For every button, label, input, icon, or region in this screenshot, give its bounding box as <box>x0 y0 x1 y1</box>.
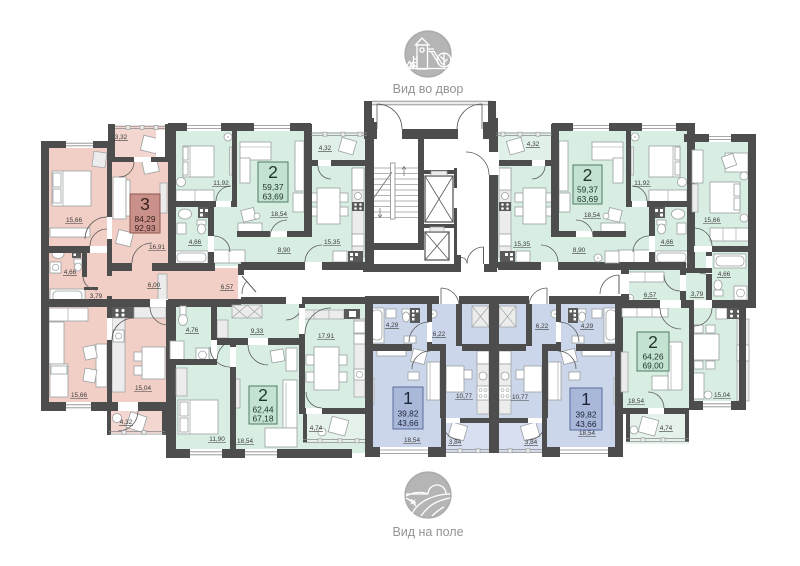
svg-text:43,66: 43,66 <box>576 419 597 429</box>
svg-text:1: 1 <box>403 388 413 408</box>
svg-text:3,79: 3,79 <box>90 293 103 300</box>
svg-text:3,32: 3,32 <box>115 134 128 141</box>
svg-text:2: 2 <box>583 165 593 185</box>
svg-text:4,29: 4,29 <box>386 322 399 329</box>
svg-text:6,00: 6,00 <box>148 282 161 289</box>
svg-text:4,66: 4,66 <box>64 269 77 276</box>
svg-text:39,82: 39,82 <box>398 409 419 419</box>
svg-text:92,93: 92,93 <box>135 223 156 233</box>
svg-text:11,92: 11,92 <box>213 180 229 187</box>
svg-text:63,69: 63,69 <box>577 194 598 204</box>
svg-text:43,66: 43,66 <box>398 418 419 428</box>
svg-text:4,74: 4,74 <box>310 425 323 432</box>
svg-text:17,91: 17,91 <box>318 333 334 340</box>
svg-text:69,00: 69,00 <box>643 361 664 371</box>
svg-text:3,84: 3,84 <box>525 439 538 446</box>
svg-text:3,84: 3,84 <box>449 439 462 446</box>
svg-text:15,04: 15,04 <box>714 392 730 399</box>
svg-text:8,90: 8,90 <box>573 247 586 254</box>
svg-text:4,29: 4,29 <box>581 323 594 330</box>
svg-text:6,22: 6,22 <box>536 323 549 330</box>
svg-text:4,76: 4,76 <box>186 327 199 334</box>
svg-text:4,32: 4,32 <box>120 419 133 426</box>
svg-text:15,66: 15,66 <box>66 217 82 224</box>
svg-text:4,32: 4,32 <box>527 141 540 148</box>
svg-text:8,90: 8,90 <box>278 247 291 254</box>
svg-text:2: 2 <box>258 385 268 405</box>
svg-text:18,54: 18,54 <box>404 437 420 444</box>
svg-text:39,82: 39,82 <box>576 410 597 420</box>
svg-text:4,66: 4,66 <box>189 239 202 246</box>
svg-text:2: 2 <box>268 162 278 182</box>
svg-text:6,57: 6,57 <box>644 292 657 299</box>
svg-text:3,79: 3,79 <box>691 291 704 298</box>
svg-text:9,33: 9,33 <box>251 328 264 335</box>
svg-text:1: 1 <box>581 389 591 409</box>
svg-text:4,74: 4,74 <box>660 425 673 432</box>
svg-text:11,92: 11,92 <box>634 180 650 187</box>
svg-text:Вид на поле: Вид на поле <box>392 525 463 539</box>
svg-text:59,37: 59,37 <box>577 185 598 195</box>
svg-text:15,35: 15,35 <box>324 239 340 246</box>
svg-text:6,57: 6,57 <box>221 284 234 291</box>
svg-text:6,22: 6,22 <box>433 331 446 338</box>
svg-text:2: 2 <box>648 332 658 352</box>
svg-text:59,37: 59,37 <box>263 182 284 192</box>
svg-text:11,90: 11,90 <box>209 436 225 443</box>
svg-text:18,54: 18,54 <box>628 398 644 405</box>
svg-text:4,66: 4,66 <box>718 271 731 278</box>
svg-text:67,18: 67,18 <box>253 414 274 424</box>
svg-text:18,54: 18,54 <box>579 430 595 437</box>
svg-text:4,66: 4,66 <box>661 239 674 246</box>
svg-text:18,54: 18,54 <box>237 438 253 445</box>
svg-text:15,66: 15,66 <box>704 217 720 224</box>
svg-text:18,54: 18,54 <box>271 211 287 218</box>
svg-text:15,66: 15,66 <box>71 392 87 399</box>
svg-text:16,91: 16,91 <box>149 244 165 251</box>
svg-text:18,54: 18,54 <box>584 212 600 219</box>
svg-text:Вид во двор: Вид во двор <box>393 82 464 96</box>
svg-text:4,32: 4,32 <box>319 145 332 152</box>
svg-text:10,77: 10,77 <box>456 393 472 400</box>
svg-text:3: 3 <box>140 194 150 214</box>
svg-text:10,77: 10,77 <box>512 394 528 401</box>
svg-text:15,04: 15,04 <box>135 385 151 392</box>
svg-text:63,69: 63,69 <box>263 192 284 202</box>
svg-text:15,35: 15,35 <box>514 241 530 248</box>
